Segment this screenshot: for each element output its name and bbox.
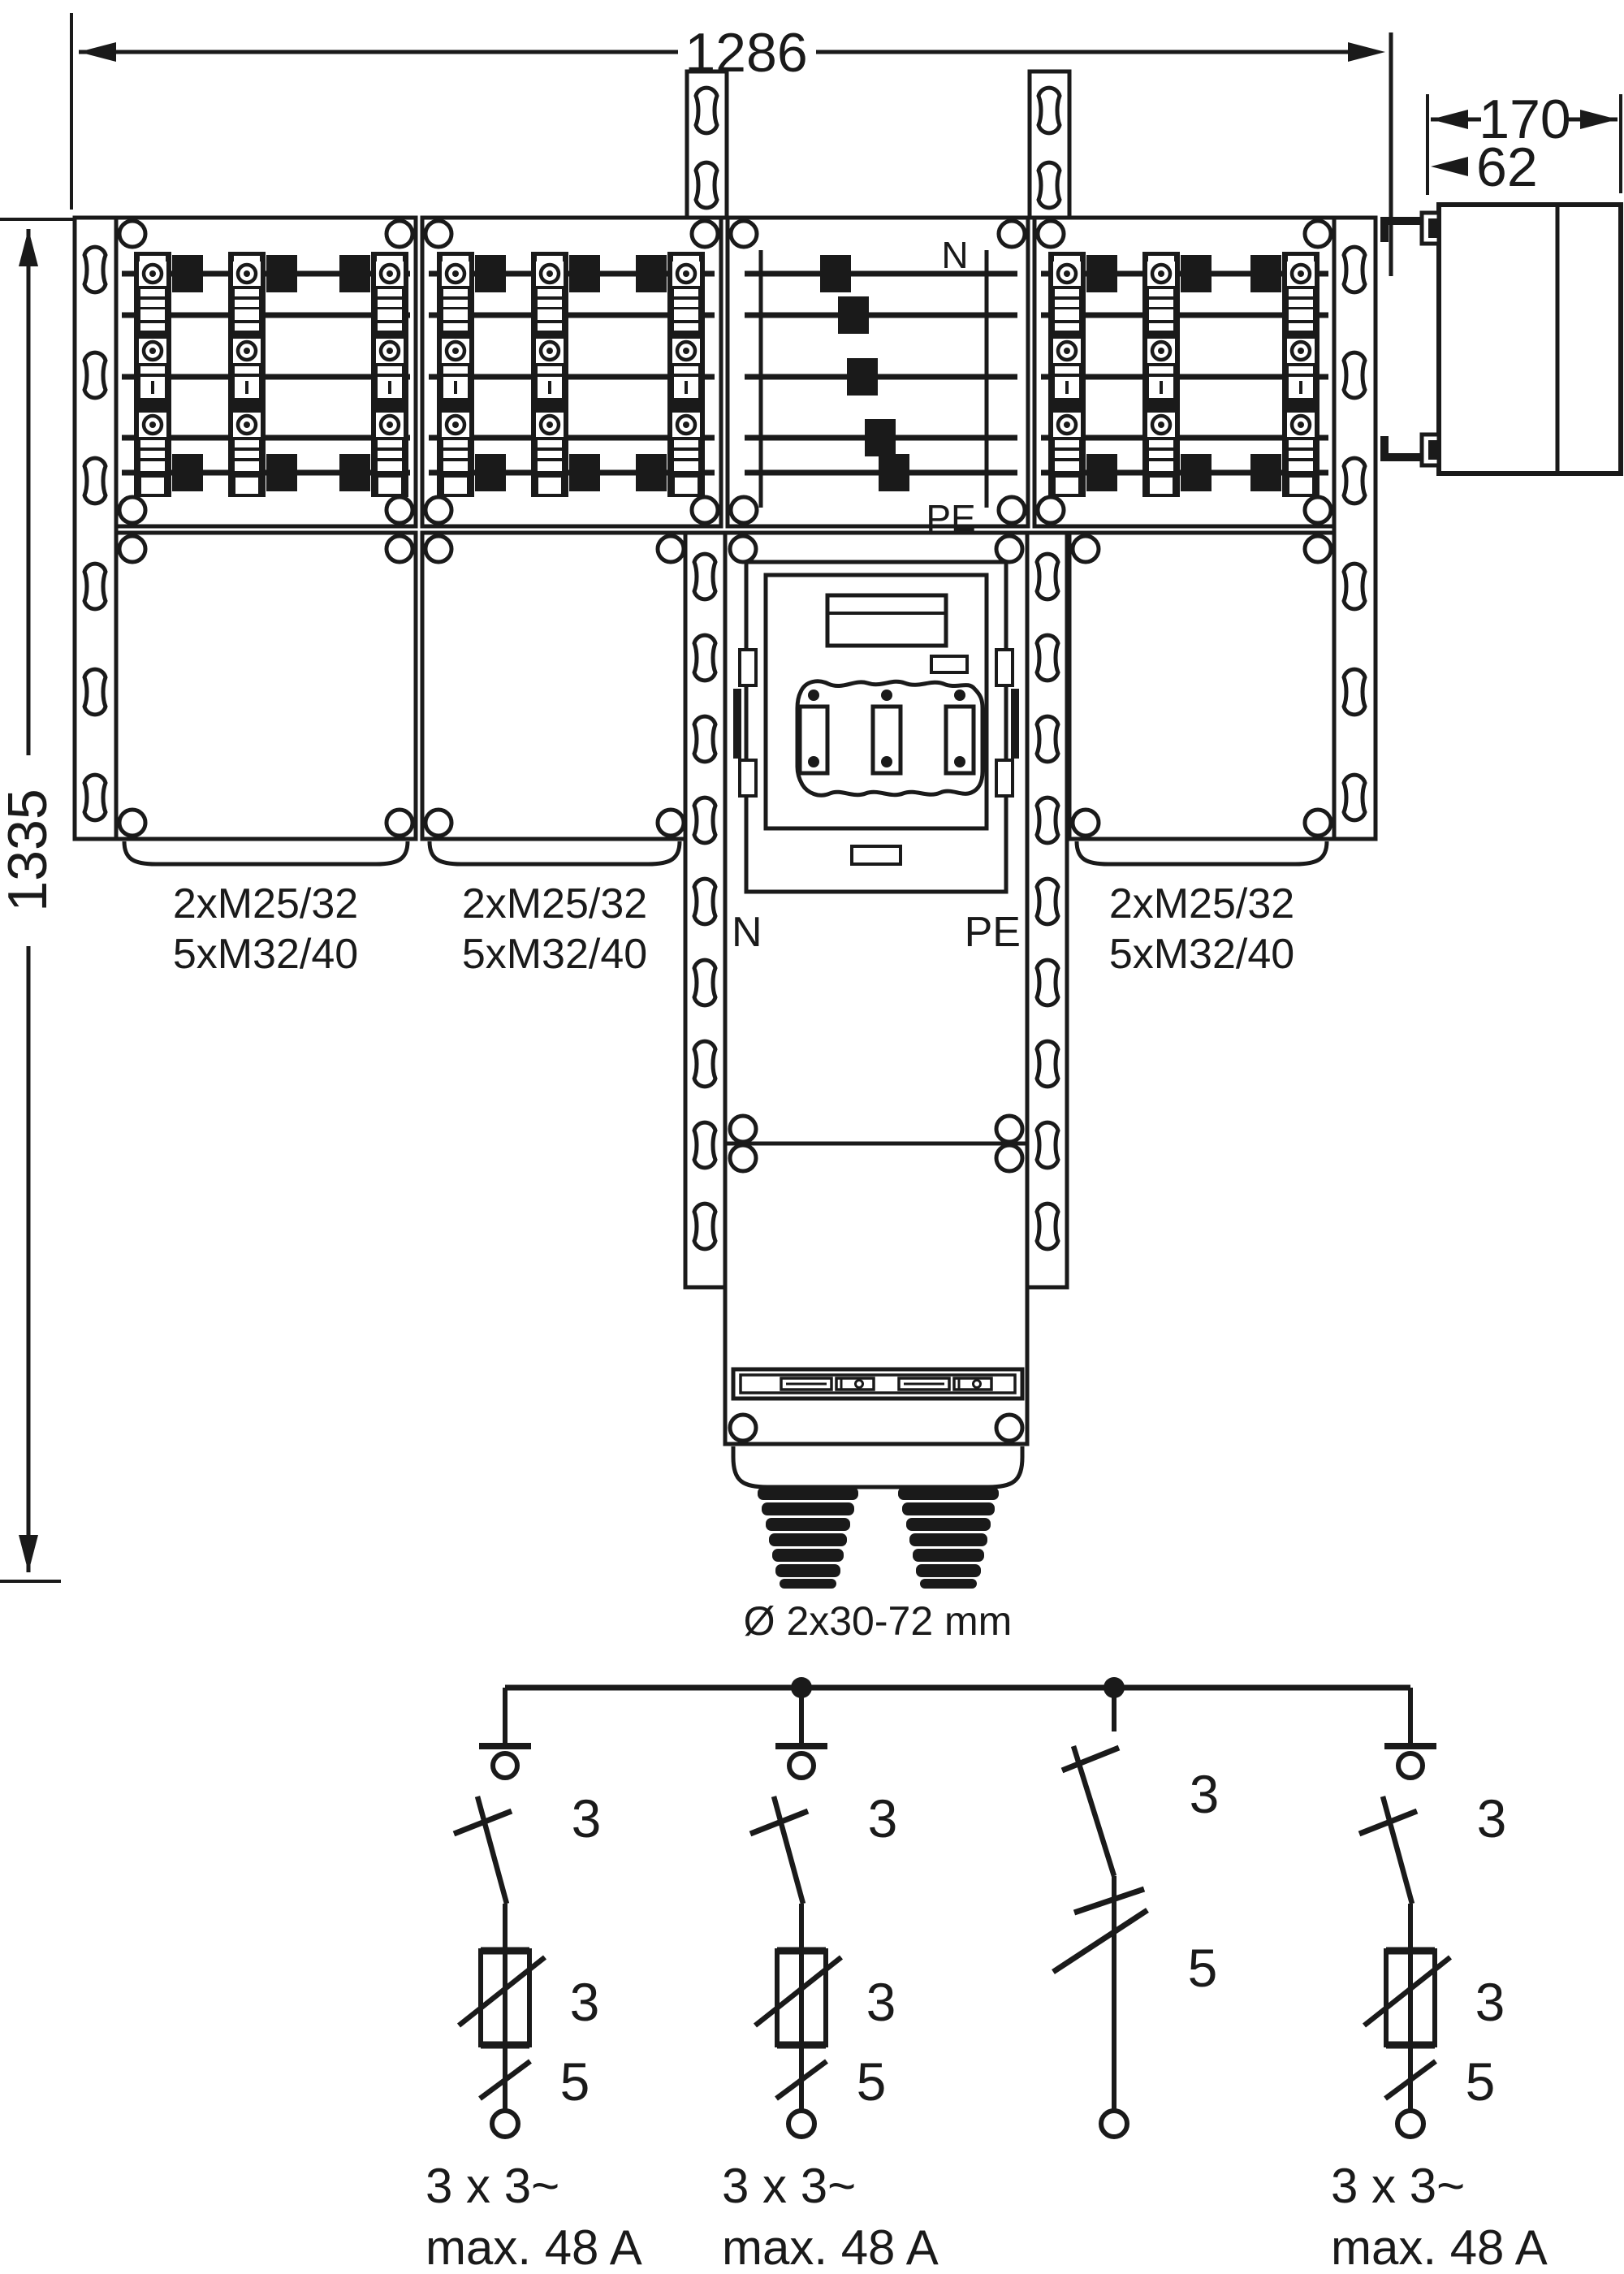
handle — [852, 846, 901, 864]
outlet-poles: 5 — [1466, 2051, 1496, 2112]
cable-gland-left — [758, 1487, 858, 1589]
neutral-label: N — [732, 909, 762, 956]
neutral-label: N — [941, 234, 968, 276]
earth-label: PE — [965, 909, 1021, 956]
front-view: N PE — [75, 71, 1376, 1644]
busbar-module-2 — [422, 218, 721, 526]
rating-line2: max. 48 A — [722, 2220, 939, 2274]
rating-line1: 3 x 3~ — [1331, 2159, 1465, 2213]
plug-contact-icon — [1398, 1753, 1423, 1778]
rating-line2: max. 48 A — [425, 2220, 642, 2274]
entry-label-3-line2: 5xM32/40 — [1109, 931, 1294, 978]
fuse-poles: 3 — [866, 1972, 896, 2032]
arrow-down-icon — [19, 1535, 38, 1572]
busbar-module-1 — [116, 218, 416, 526]
dimension-offset: 62 — [1431, 136, 1538, 198]
outlet-poles: 5 — [857, 2051, 887, 2112]
np-distribution-panel: N PE — [728, 218, 1028, 539]
height-value: 1335 — [0, 789, 58, 911]
entry-label-3-line1: 2xM25/32 — [1109, 880, 1294, 927]
branch-2: 3 3 5 3 x 3~ max. 48 A — [722, 1688, 939, 2274]
terminal-strip — [733, 1369, 1022, 1399]
branch-3: 3 5 — [1053, 1688, 1219, 2137]
switch-poles: 3 — [868, 1788, 898, 1848]
gland-size-label: Ø 2x30-72 mm — [744, 1598, 1013, 1644]
outlet-terminal-icon — [788, 2111, 814, 2137]
label-window — [931, 656, 967, 672]
switch-poles: 3 — [1190, 1764, 1220, 1824]
arrow-left-icon — [79, 42, 116, 62]
gland-flange — [124, 841, 408, 864]
rating-line1: 3 x 3~ — [722, 2159, 856, 2213]
entry-label-1-line1: 2xM25/32 — [173, 880, 358, 927]
entry-label-1-line2: 5xM32/40 — [173, 931, 358, 978]
rating-line1: 3 x 3~ — [425, 2159, 559, 2213]
entry-label-2-line2: 5xM32/40 — [462, 931, 647, 978]
switch-poles: 3 — [1477, 1788, 1507, 1848]
mounting-rail-right — [1334, 218, 1376, 839]
arrow-left-icon — [1431, 110, 1468, 129]
outlet-terminal-icon — [1101, 2111, 1127, 2137]
cable-entry-box-3 — [1069, 533, 1334, 864]
hanger-bracket-left — [687, 71, 727, 218]
rail-slots-right — [1037, 554, 1058, 1249]
distribution-board-drawing: 1286 1335 170 62 — [0, 0, 1624, 2274]
fuse-poles: 3 — [1475, 1972, 1505, 2032]
switch-blade-icon — [1073, 1746, 1114, 1876]
offset-value: 62 — [1476, 136, 1538, 198]
plug-contact-icon — [493, 1753, 517, 1778]
arrow-right-icon — [1580, 110, 1618, 129]
gland-flange — [1077, 841, 1327, 864]
gland-flange-bottom — [733, 1446, 1022, 1487]
arrow-up-icon — [19, 229, 38, 266]
outlet-poles: 5 — [560, 2051, 590, 2112]
gland-flange — [430, 841, 680, 864]
display-window — [827, 595, 946, 646]
technical-drawing-page: 1286 1335 170 62 — [0, 0, 1624, 2274]
arrow-right-icon — [1348, 42, 1385, 62]
fuse-poles: 3 — [570, 1972, 600, 2032]
branch-4: 3 3 5 3 x 3~ max. 48 A — [1331, 1688, 1548, 2274]
cable-entry-box-2 — [422, 533, 687, 864]
cable-entry-box-1 — [116, 533, 416, 864]
hanger-bracket-right — [1030, 71, 1069, 218]
plug-contact-icon — [789, 1753, 814, 1778]
outlet-terminal-icon — [1397, 2111, 1423, 2137]
arrow-left-icon — [1431, 157, 1468, 176]
busbar-module-3 — [1034, 218, 1334, 526]
circuit-diagram: 3 3 5 3 x 3~ max. 48 A 3 3 5 3 x 3~ — [425, 1677, 1548, 2274]
rating-line2: max. 48 A — [1331, 2220, 1548, 2274]
entry-label-2-line1: 2xM25/32 — [462, 880, 647, 927]
side-view — [1384, 205, 1621, 473]
branch-1: 3 3 5 3 x 3~ max. 48 A — [425, 1688, 642, 2274]
mounting-rail-left — [75, 218, 116, 839]
cable-gland-right — [898, 1487, 999, 1589]
outlet-poles: 5 — [1188, 1938, 1218, 1998]
outlet-terminal-icon — [492, 2111, 518, 2137]
nh-fuse-switch — [733, 562, 1019, 892]
center-section: N PE — [685, 533, 1067, 1644]
rail-slots-left — [694, 554, 715, 1249]
dimension-height: 1335 — [0, 219, 81, 1581]
switch-poles: 3 — [572, 1788, 602, 1848]
